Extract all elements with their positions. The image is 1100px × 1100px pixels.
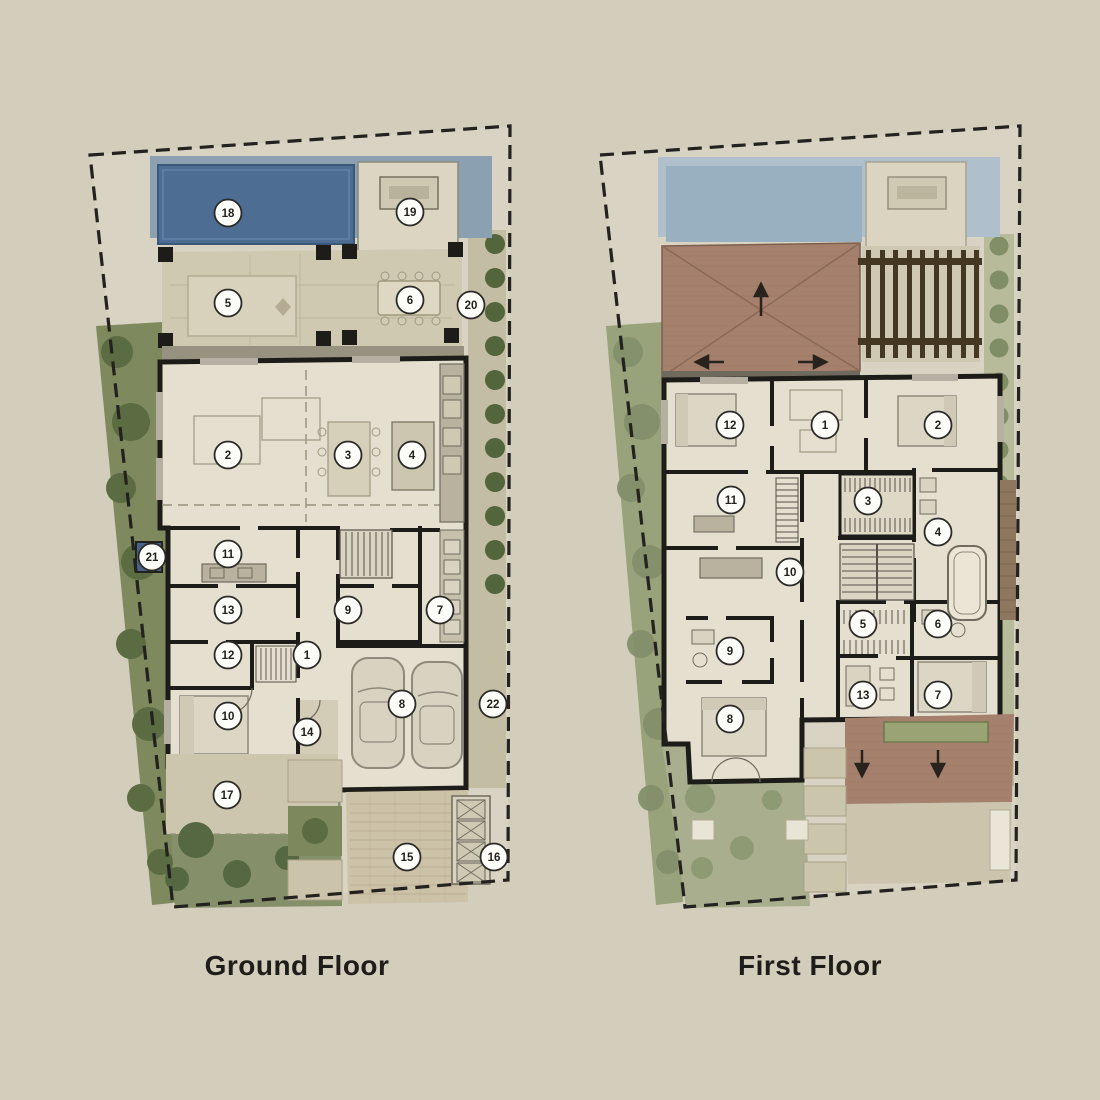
svg-text:5: 5 bbox=[860, 619, 867, 631]
svg-text:8: 8 bbox=[727, 714, 734, 726]
first-floor-drawing: 12345678910111213 bbox=[0, 0, 1100, 1100]
side-balcony bbox=[1000, 480, 1016, 620]
roof-terrace bbox=[845, 714, 1014, 884]
plan-marker-7: 7 bbox=[925, 682, 952, 709]
svg-text:12: 12 bbox=[724, 420, 737, 432]
plan-marker-3: 3 bbox=[855, 488, 882, 515]
first-floor-title: First Floor bbox=[738, 950, 882, 982]
plan-marker-4: 4 bbox=[925, 519, 952, 546]
plan-marker-5: 5 bbox=[850, 611, 877, 638]
svg-text:1: 1 bbox=[822, 420, 829, 432]
plan-marker-10: 10 bbox=[777, 559, 804, 586]
plan-marker-12: 12 bbox=[717, 412, 744, 439]
floor-plan-sheet: 12345678910111213141516171819202122 bbox=[0, 0, 1100, 1100]
svg-text:2: 2 bbox=[935, 420, 941, 432]
planter-box bbox=[990, 810, 1010, 870]
svg-text:6: 6 bbox=[935, 619, 941, 631]
svg-text:13: 13 bbox=[857, 690, 870, 702]
plan-marker-9: 9 bbox=[717, 638, 744, 665]
svg-text:3: 3 bbox=[865, 496, 871, 508]
pavilion-faded bbox=[866, 162, 966, 252]
pergola bbox=[858, 246, 982, 362]
svg-text:11: 11 bbox=[725, 495, 738, 507]
svg-text:9: 9 bbox=[727, 646, 733, 658]
svg-text:4: 4 bbox=[935, 527, 942, 539]
plan-marker-13: 13 bbox=[850, 682, 877, 709]
hip-roof bbox=[662, 243, 860, 384]
plan-marker-8: 8 bbox=[717, 706, 744, 733]
ground-floor-title: Ground Floor bbox=[205, 950, 390, 982]
plan-marker-6: 6 bbox=[925, 611, 952, 638]
hall-vanity bbox=[700, 558, 762, 578]
svg-text:7: 7 bbox=[935, 690, 941, 702]
terrace-planter bbox=[884, 722, 988, 742]
first-floor-plan: 12345678910111213 bbox=[0, 0, 1100, 1100]
plan-marker-1: 1 bbox=[812, 412, 839, 439]
plan-marker-11: 11 bbox=[718, 487, 745, 514]
svg-text:10: 10 bbox=[784, 567, 797, 579]
plan-marker-2: 2 bbox=[925, 412, 952, 439]
